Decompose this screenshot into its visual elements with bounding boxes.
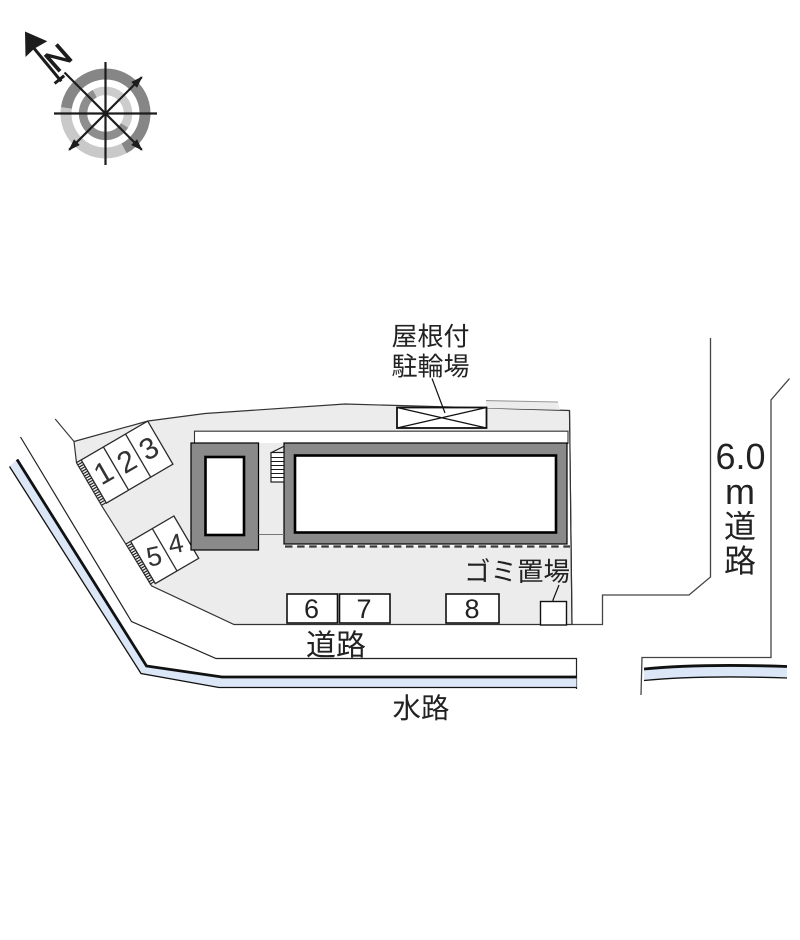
svg-text:7: 7: [356, 594, 371, 624]
svg-text:8: 8: [464, 594, 479, 624]
svg-text:6: 6: [304, 594, 319, 624]
svg-text:m: m: [725, 471, 755, 512]
